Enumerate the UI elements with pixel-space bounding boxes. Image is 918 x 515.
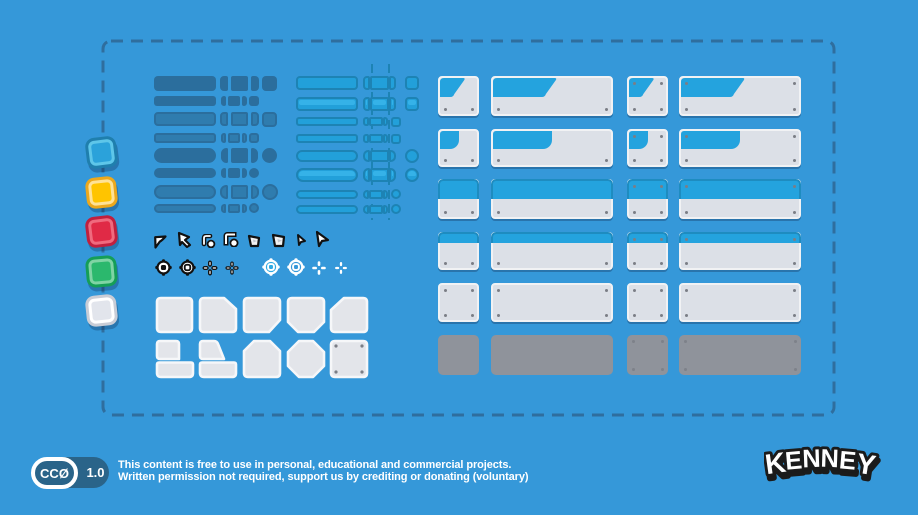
svg-text:N: N [820,445,839,474]
svg-text:E: E [784,446,803,475]
svg-text:N: N [802,445,821,474]
